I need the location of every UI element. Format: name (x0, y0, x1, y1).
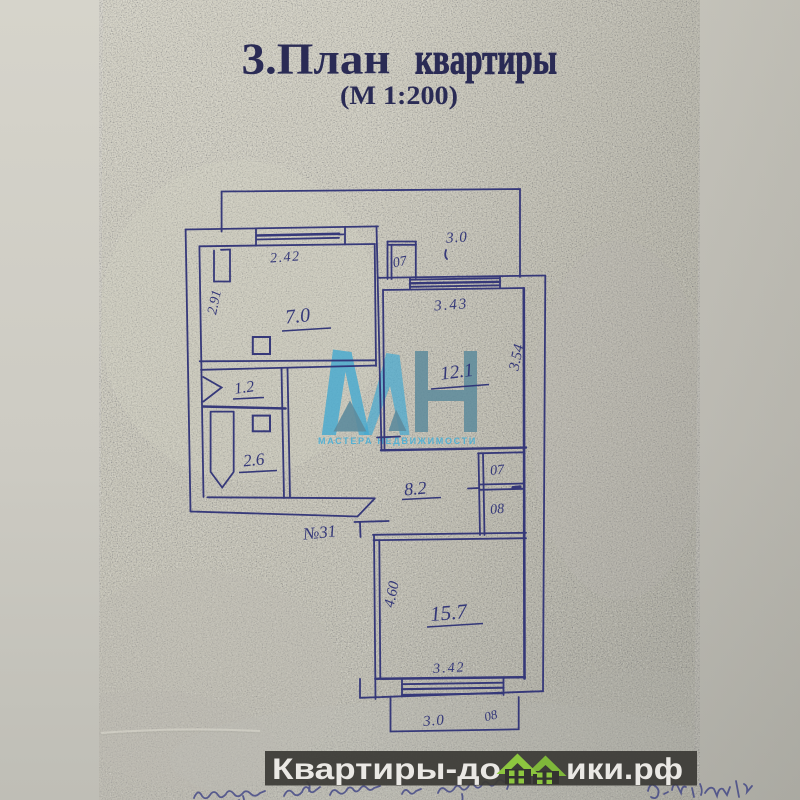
svg-text:3.0: 3.0 (445, 229, 469, 246)
svg-text:3.0: 3.0 (422, 712, 446, 730)
svg-text:15.7: 15.7 (429, 599, 469, 626)
svg-text:2.42: 2.42 (270, 249, 301, 266)
svg-text:8.2: 8.2 (403, 478, 427, 500)
svg-text:№31: №31 (301, 521, 337, 543)
svg-text:3.42: 3.42 (432, 660, 466, 677)
svg-text:7.0: 7.0 (284, 304, 311, 328)
svg-text:Квартиры-до: Квартиры-до (272, 753, 501, 786)
svg-text:3.43: 3.43 (433, 296, 469, 314)
svg-text:3.План: 3.План (242, 35, 391, 84)
svg-text:ики.рф: ики.рф (566, 753, 683, 786)
svg-text:12.1: 12.1 (439, 360, 475, 385)
svg-text:квартиры: квартиры (415, 35, 557, 84)
svg-text:(М 1:200): (М 1:200) (340, 81, 458, 110)
svg-text:08: 08 (490, 502, 505, 518)
svg-text:1.2: 1.2 (233, 378, 255, 398)
svg-text:07: 07 (490, 463, 506, 479)
svg-text:2.6: 2.6 (242, 449, 266, 470)
